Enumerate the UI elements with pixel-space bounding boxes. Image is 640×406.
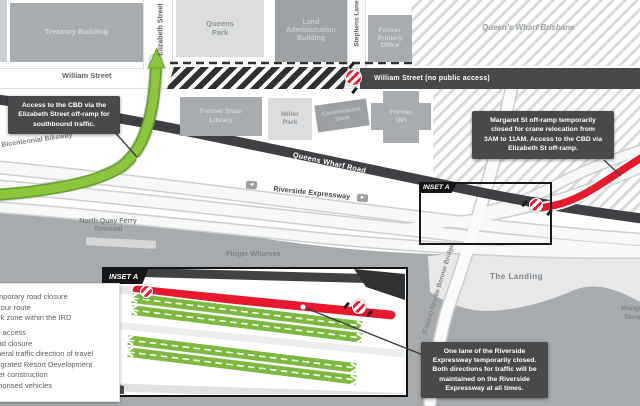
callout-line: Elizabeth St off-ramp. — [475, 144, 611, 153]
building-label: Land Administration Building — [283, 19, 339, 44]
william-street-label: William Street — [62, 71, 112, 80]
finger-wharves-label: Finger Wharves — [226, 249, 281, 258]
legend-item-traffic-direction: General traffic direction of travel — [0, 349, 93, 358]
callout-line: southbound traffic. — [11, 120, 117, 129]
stephens-lane-label: Stephens Lane — [354, 0, 361, 52]
mangrove-line: Mangrove — [621, 305, 640, 314]
callout-margaret-st: Margaret St off-ramp temporarily closed … — [472, 111, 614, 159]
building-land-administration: Land Administration Building — [275, 0, 347, 62]
inset-a-box-tag: INSET A — [104, 269, 148, 284]
callout-line: 3AM to 11AM. Access to the CBD via — [475, 135, 611, 144]
legend-item-ird-line2: under construction — [0, 370, 48, 379]
legend-item-road-closure: Road closure — [0, 339, 32, 348]
park-label: Miller Park — [277, 111, 303, 127]
callout-line: Margaret St off-ramp temporarily — [475, 116, 611, 125]
callout-line: One lane of the Riverside — [424, 347, 545, 356]
traffic-direction-left-icon: ◄ — [246, 181, 258, 190]
callout-line: Expressway temporarily closed. — [424, 356, 545, 365]
building-treasury: Treasury Building — [10, 3, 143, 62]
mangrove-line: Terrace — [621, 314, 640, 323]
callout-line: Both directions for traffic will be — [424, 365, 545, 374]
road-closure-icon-inset-left — [140, 285, 153, 298]
legend-item-temporary-road-closure: Temporary road closure — [0, 292, 68, 301]
road-closure-icon-margaret-ramp — [529, 198, 543, 212]
callout-line: Elizabeth Street off-ramp for — [11, 110, 117, 119]
building-label: Former Printery Office — [373, 27, 407, 50]
inset-a-map-tag: INSET A — [419, 182, 458, 193]
elizabeth-street-label: Elizabeth Street — [158, 1, 165, 59]
callout-line: Access to the CBD via the — [11, 101, 117, 110]
callout-line: closed for crane relocation from — [475, 125, 611, 134]
callout-line: Expressway at all times. — [424, 384, 545, 393]
legend-item-no-access: No access — [0, 328, 26, 337]
building-label: Treasury Building — [44, 28, 110, 37]
legend-item-work-zone: Work zone within the IRD — [0, 313, 71, 322]
callout-one-lane: One lane of the Riverside Expressway tem… — [421, 342, 548, 398]
park-queens: Queens Park — [176, 0, 264, 57]
mangrove-terrace-label: Mangrove Terrace — [621, 305, 640, 323]
north-quay-ferry-terminal-label: North Quay Ferry Terminal — [77, 218, 139, 235]
callout-line: maintained on the Riverside — [424, 375, 545, 384]
building-former-state-library: Former State Library — [180, 97, 262, 136]
road-closure-icon-william — [345, 69, 362, 86]
park-miller: Miller Park — [268, 98, 312, 140]
road-closure-icon-inset-right — [352, 300, 366, 314]
building-label: Commissariat Store — [318, 106, 365, 126]
traffic-map: Treasury Building Queens Park Land Admin… — [0, 0, 640, 406]
queens-wharf-brisbane-label: Queen's Wharf Brisbane — [482, 23, 575, 32]
callout-access-cbd: Access to the CBD via the Elizabeth Stre… — [8, 96, 120, 134]
legend-item-ird-line1: Integrated Resort Development — [0, 360, 92, 369]
building-sliver — [0, 0, 7, 62]
building-former-printery: Former Printery Office — [368, 15, 412, 62]
william-street-closed-hatch — [167, 67, 348, 89]
legend-item-authorised-vehicles: Authorised vehicles — [0, 381, 52, 390]
legend-item-detour-route: Detour route — [0, 303, 31, 312]
building-former-dpi-wing: Former DPI — [371, 103, 431, 130]
park-label: Queens Park — [199, 20, 241, 38]
building-label: Former DPI — [386, 109, 416, 124]
callout-anchor-dot — [136, 157, 141, 162]
building-label: Former State Library — [193, 108, 249, 124]
traffic-direction-right-icon: ► — [357, 194, 369, 203]
the-landing-label: The Landing — [490, 272, 543, 281]
william-street-no-access-bar: William Street (no public access) — [360, 68, 640, 89]
